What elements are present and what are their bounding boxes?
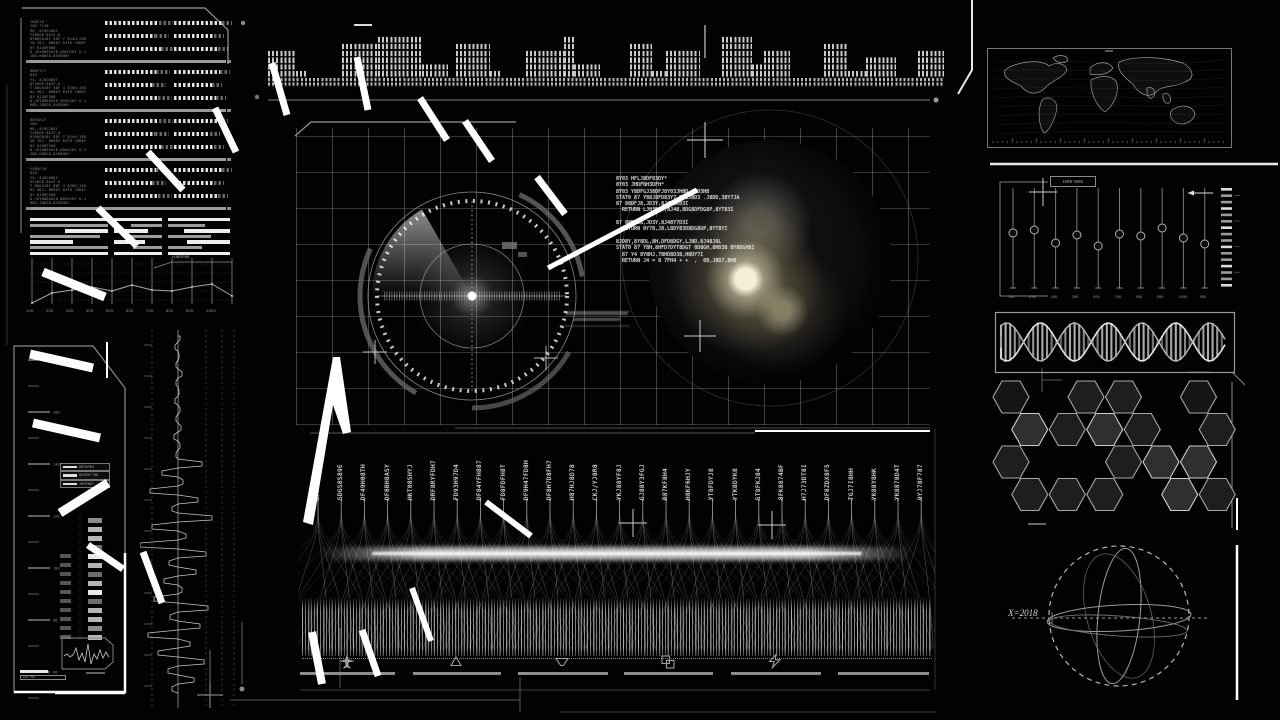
- clock-tick: [420, 98, 447, 140]
- clock-tick: [548, 190, 697, 268]
- clock-tick: [537, 177, 565, 214]
- clock-tick: [143, 552, 162, 603]
- clock-tick: [357, 57, 368, 110]
- clock-tick: [148, 152, 183, 190]
- hud-dashboard: Y8DFJ8J8D 7Y48HD- 8YDGJ8DYYJ8DG8 8DJF-88…: [0, 0, 1280, 720]
- clock-hand: [303, 357, 351, 525]
- clock-tick: [60, 483, 108, 513]
- clock-tick: [412, 588, 431, 641]
- clock-tick: [30, 354, 93, 368]
- clock-tick: [215, 108, 236, 152]
- clock-tick: [98, 208, 137, 246]
- clock-tick: [486, 502, 531, 536]
- tick-dash: [354, 24, 372, 26]
- clock-tick: [465, 121, 492, 161]
- clock-tick: [362, 630, 378, 676]
- clock-tick: [33, 423, 100, 438]
- clock-tick: [43, 272, 105, 297]
- clock-tick: [312, 632, 322, 684]
- clock-tick: [88, 545, 123, 569]
- clock-overlay: [0, 0, 1280, 720]
- clock-tick: [272, 63, 287, 115]
